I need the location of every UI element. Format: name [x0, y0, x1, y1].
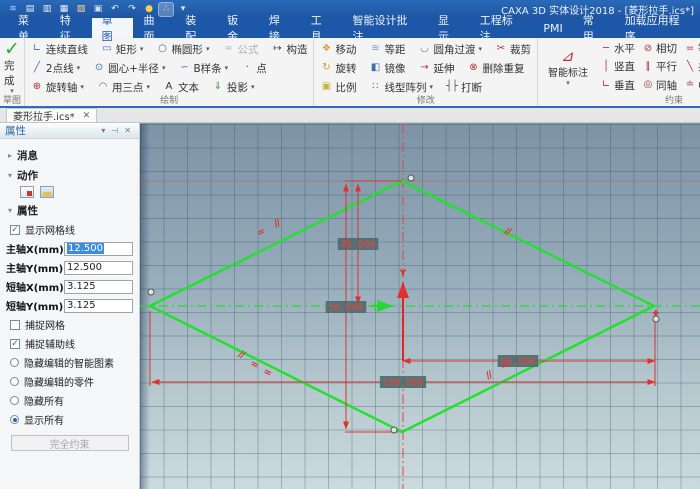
section-properties[interactable]: ▾属性 — [8, 203, 133, 218]
move-button[interactable]: ❖移动 — [318, 41, 358, 58]
chevron-down-icon: ▾ — [146, 83, 150, 91]
ribbon-row: ❖移动≋等距◡圆角过渡▾✂裁剪 — [318, 40, 533, 58]
group-label-constraint: 约束 — [538, 93, 700, 106]
section-properties-label: 属性 — [17, 203, 38, 218]
perpendicular-constraint-label: 垂直 — [614, 78, 635, 93]
two-point-line-icon: ╱ — [31, 63, 43, 73]
parallel-constraint-mark: // — [484, 369, 495, 382]
radio-icon[interactable] — [10, 415, 19, 424]
two-point-line-button[interactable]: ╱2点线▾ — [29, 60, 82, 77]
menu-tab-装配[interactable]: 装配 — [175, 18, 217, 38]
menu-tab-工程标注[interactable]: 工程标注 — [470, 18, 534, 38]
radio-icon[interactable] — [10, 377, 19, 386]
properties-panel: 属性 ▾ ⊤ ✕ ▸消息▾动作▾属性✓显示网格线主轴X(mm)12.500主轴Y… — [0, 123, 140, 489]
triangle-down-icon: ▾ — [8, 206, 12, 215]
ribbon-row: ╱2点线▾⊙圆心+半径▾∽B样条▾·点 — [29, 59, 310, 77]
menu-tab-钣金[interactable]: 钣金 — [217, 18, 259, 38]
field-input-3[interactable]: 3.125 — [64, 299, 133, 313]
projection-icon: ⇓ — [212, 82, 224, 92]
delete-duplicate-icon: ⊗ — [467, 63, 479, 73]
field-value: 12.500 — [67, 262, 102, 273]
extend-label: 延伸 — [433, 61, 454, 76]
chevron-down-icon: ▾ — [206, 45, 210, 53]
equal-length-constraint-icon: = — [684, 44, 696, 54]
radio-label: 显示所有 — [24, 412, 64, 427]
construction-icon: ↦ — [271, 44, 283, 54]
equal-constraint-mark: = — [248, 358, 260, 371]
fillet-icon: ◡ — [418, 44, 430, 54]
construction-label: 构造 — [286, 42, 307, 57]
delete-duplicate-label: 删除重复 — [482, 61, 524, 76]
finish-button[interactable]: ✓ 完成 ▾ — [4, 40, 20, 94]
vertex-marker[interactable] — [653, 316, 659, 322]
circle-center-radius-label: 圆心+半径 — [108, 61, 159, 76]
vertex-marker[interactable] — [408, 175, 414, 181]
show-gridlines-checkbox[interactable]: ✓显示网格线 — [10, 222, 133, 237]
horizontal-constraint-button[interactable]: ─水平 — [598, 40, 638, 57]
close-icon[interactable]: ✕ — [83, 111, 91, 121]
y-axis-label: Y — [399, 269, 407, 279]
rotation-axis-icon: ⊕ — [31, 82, 43, 92]
properties-panel-title: 属性 — [5, 123, 98, 138]
concentric-constraint-label: 同轴 — [656, 78, 677, 93]
circle-center-radius-button[interactable]: ⊙圆心+半径▾ — [91, 60, 167, 77]
formula-button: ≈公式 — [220, 41, 260, 58]
chevron-down-icon: ▾ — [566, 80, 570, 86]
horizontal-constraint-icon: ─ — [600, 44, 612, 54]
menu-tab-显示[interactable]: 显示 — [428, 18, 470, 38]
field-input-0[interactable]: 12.500 — [64, 242, 133, 256]
rectangle-icon: ▭ — [101, 44, 113, 54]
fillet-button[interactable]: ◡圆角过渡▾ — [416, 41, 484, 58]
ribbon-row: ↻旋转◧镜像→延伸⊗删除重复 — [318, 59, 533, 77]
vertical-constraint-icon: │ — [600, 62, 612, 72]
ribbon-group-modify: ❖移动≋等距◡圆角过渡▾✂裁剪↻旋转◧镜像→延伸⊗删除重复▣比例∷线型阵列▾┤├… — [314, 38, 538, 106]
menu-tab-曲面[interactable]: 曲面 — [133, 18, 175, 38]
tangent-constraint-icon: ⊘ — [642, 44, 654, 54]
chevron-down-icon: ▾ — [162, 64, 166, 72]
equal-length-constraint-button[interactable]: =等长 — [682, 40, 700, 57]
equal-constraint-mark: = — [255, 226, 267, 239]
equal-constraint-mark: = — [261, 366, 273, 379]
check-icon: ✓ — [4, 40, 20, 58]
field-value: 3.125 — [67, 281, 96, 292]
ribbon: ✓ 完成 ▾ 草图 ∟连续直线▭矩形▾○椭圆形▾≈公式↦构造╱2点线▾⊙圆心+半… — [0, 38, 700, 108]
document-tab-label: 菱形拉手.ics* — [13, 108, 75, 123]
parallel-constraint-button[interactable]: ∥平行 — [640, 58, 680, 75]
vertex-marker[interactable] — [148, 289, 154, 295]
pin-icon[interactable]: ⊤ — [110, 124, 119, 137]
checkbox-icon[interactable]: ✓ — [10, 339, 20, 349]
radio-icon[interactable] — [10, 396, 19, 405]
point-icon: · — [241, 63, 253, 73]
b-spline-icon: ∽ — [178, 63, 190, 73]
checkbox-icon[interactable]: ✓ — [10, 225, 20, 235]
delete-duplicate-button[interactable]: ⊗删除重复 — [465, 60, 526, 77]
section-messages-label: 消息 — [17, 148, 38, 163]
tangent-constraint-label: 相切 — [656, 41, 677, 56]
perpendicular-constraint-icon: ∟ — [600, 80, 612, 90]
snap-checkbox-1[interactable]: ✓捕捉辅助线 — [10, 336, 133, 351]
field-value: 12.500 — [67, 243, 104, 254]
concentric-constraint-button[interactable]: ◎同轴 — [640, 77, 680, 94]
chevron-down-icon: ▾ — [77, 64, 81, 72]
rectangle-button[interactable]: ▭矩形▾ — [99, 41, 146, 58]
continuous-line-icon: ∟ — [31, 44, 43, 54]
pattern-icon: ∷ — [369, 82, 381, 92]
menu-tab-PMI[interactable]: PMI — [533, 18, 572, 38]
radio-label: 隐藏编辑的智能图素 — [24, 355, 114, 370]
offset-label: 等距 — [384, 42, 405, 57]
chevron-down-icon: ▾ — [429, 83, 433, 91]
menu-tab-加载应用程序[interactable]: 加载应用程序 — [615, 18, 700, 38]
vertical-constraint-label: 竖直 — [614, 59, 635, 74]
field-row: 主轴X(mm)12.500 — [6, 241, 133, 256]
two-point-line-label: 2点线 — [46, 61, 74, 76]
point-button[interactable]: ·点 — [239, 60, 269, 77]
chevron-down-icon[interactable]: ▾ — [98, 126, 108, 135]
redo-icon[interactable]: ↷ — [125, 3, 139, 16]
checkbox-icon[interactable] — [10, 320, 20, 330]
section-messages[interactable]: ▸消息 — [8, 148, 133, 163]
b-spline-label: B样条 — [193, 61, 221, 76]
midpoint-constraint-icon: ≐ — [684, 80, 696, 90]
group-label-sketch: 草图 — [0, 93, 24, 106]
sketch-canvas[interactable]: Y25.00050.00050.000100.000//=////===// — [140, 123, 700, 489]
chevron-down-icon: ▾ — [80, 83, 84, 91]
menu-tab-智能设计批注[interactable]: 智能设计批注 — [343, 18, 428, 38]
formula-icon: ≈ — [222, 44, 234, 54]
field-row: 短轴Y(mm)3.125 — [6, 298, 133, 313]
field-value: 3.125 — [67, 300, 96, 311]
document-tab[interactable]: 菱形拉手.ics* ✕ — [6, 108, 97, 122]
trim-label: 裁剪 — [510, 42, 531, 57]
radio-icon[interactable] — [10, 358, 19, 367]
group-label-modify: 修改 — [314, 93, 537, 106]
menu-tab-焊接[interactable]: 焊接 — [259, 18, 301, 38]
snap-checkbox-0[interactable]: 捕捉网格 — [10, 317, 133, 332]
fully-constrain-button[interactable]: 完全约束 — [11, 435, 129, 451]
menu-tab-工具[interactable]: 工具 — [301, 18, 343, 38]
three-point-arc-icon: ◠ — [97, 82, 109, 92]
ribbon-row: ∟连续直线▭矩形▾○椭圆形▾≈公式↦构造 — [29, 40, 310, 58]
menu-tab-常用[interactable]: 常用 — [573, 18, 615, 38]
collinear-constraint-button[interactable]: ╲共线 — [682, 58, 700, 75]
menu-bar: 菜单特征草图曲面装配钣金焊接工具智能设计批注显示工程标注PMI常用加载应用程序 — [0, 18, 700, 38]
continuous-line-label: 连续直线 — [46, 42, 88, 57]
mirror-button[interactable]: ◧镜像 — [367, 60, 407, 77]
full-height-dim-value[interactable]: 50.000 — [329, 303, 364, 314]
text-icon: A — [163, 82, 175, 92]
chevron-down-icon: ▾ — [478, 45, 482, 53]
parallel-constraint-mark: // — [272, 217, 283, 230]
radio-label: 隐藏所有 — [24, 393, 64, 408]
caxa-window: ≋▤▥▦▧▣↶↷●∴▾ CAXA 3D 实体设计2018 - [菱形拉手.ics… — [0, 0, 700, 489]
offset-button[interactable]: ≋等距 — [367, 41, 407, 58]
field-input-1[interactable]: 12.500 — [64, 261, 133, 275]
vertical-constraint-button[interactable]: │竖直 — [598, 58, 638, 75]
extend-icon: → — [418, 63, 430, 73]
snap-checkbox-1-label: 捕捉辅助线 — [25, 336, 75, 351]
field-row: 短轴X(mm)3.125 — [6, 279, 133, 294]
ribbon-group-draw: ∟连续直线▭矩形▾○椭圆形▾≈公式↦构造╱2点线▾⊙圆心+半径▾∽B样条▾·点⊕… — [25, 38, 315, 106]
sketch-drawing: Y25.00050.00050.000100.000//=////===// — [140, 124, 700, 489]
ellipse-button[interactable]: ○椭圆形▾ — [154, 41, 211, 58]
horizontal-constraint-label: 水平 — [614, 41, 635, 56]
field-label: 主轴X(mm) — [6, 241, 64, 256]
document-tab-bar: 菱形拉手.ics* ✕ — [0, 108, 700, 123]
parallel-constraint-label: 平行 — [656, 59, 677, 74]
ribbon-group-constraint: ⊿ 智能标注 ▾ ─水平⊘相切=等长∠重合▷穿透│竖直∥平行╲共线◫镜像✎编辑尺… — [538, 38, 700, 106]
edit-action-icon[interactable] — [20, 186, 34, 198]
chevron-down-icon: ▾ — [225, 64, 229, 72]
radio-label: 隐藏编辑的零件 — [24, 374, 94, 389]
ribbon-row: ∟垂直◎同轴≐中点⊥固定◈水平▾ — [598, 77, 700, 94]
circle-center-radius-icon: ⊙ — [93, 63, 105, 73]
rotate-icon: ↻ — [320, 63, 332, 73]
tangent-constraint-button[interactable]: ⊘相切 — [640, 40, 680, 57]
formula-label: 公式 — [237, 42, 258, 57]
field-label: 短轴X(mm) — [6, 279, 64, 294]
visibility-radio-3[interactable]: 显示所有 — [10, 412, 133, 427]
section-actions-label: 动作 — [17, 168, 38, 183]
visibility-radio-0[interactable]: 隐藏编辑的智能图素 — [10, 355, 133, 370]
triangle-right-icon: ▸ — [8, 151, 12, 160]
trim-icon: ✂ — [495, 44, 507, 54]
menu-tab-草图[interactable]: 草图 — [92, 18, 134, 38]
menu-tab-特征[interactable]: 特征 — [50, 18, 92, 38]
ribbon-group-sketch: ✓ 完成 ▾ 草图 — [0, 38, 25, 106]
midpoint-constraint-button[interactable]: ≐中点 — [682, 77, 700, 94]
perpendicular-constraint-button[interactable]: ∟垂直 — [598, 77, 638, 94]
chevron-down-icon: ▾ — [251, 83, 255, 91]
offset-icon: ≋ — [369, 44, 381, 54]
visibility-radio-2[interactable]: 隐藏所有 — [10, 393, 133, 408]
continuous-line-button[interactable]: ∟连续直线 — [29, 41, 90, 58]
field-label: 主轴Y(mm) — [6, 260, 64, 275]
properties-panel-header: 属性 ▾ ⊤ ✕ — [0, 123, 139, 139]
fillet-label: 圆角过渡 — [433, 42, 475, 57]
ribbon-row: │竖直∥平行╲共线◫镜像✎编辑尺寸 — [598, 58, 700, 75]
concentric-constraint-icon: ◎ — [642, 80, 654, 90]
b-spline-button[interactable]: ∽B样条▾ — [176, 60, 230, 77]
open-file-icon[interactable]: ▥ — [40, 3, 54, 16]
snap-checkbox-0-label: 捕捉网格 — [25, 317, 65, 332]
field-input-2[interactable]: 3.125 — [64, 280, 133, 294]
close-icon[interactable]: ✕ — [121, 126, 134, 135]
extend-button[interactable]: →延伸 — [416, 60, 456, 77]
smart-dimension-button[interactable]: ⊿ 智能标注 ▾ — [542, 40, 594, 94]
move-label: 移动 — [335, 42, 356, 57]
move-icon: ❖ — [320, 44, 332, 54]
mirror-label: 镜像 — [384, 61, 405, 76]
visibility-radio-1[interactable]: 隐藏编辑的零件 — [10, 374, 133, 389]
ellipse-icon: ○ — [156, 44, 168, 54]
group-label-draw: 绘制 — [25, 93, 314, 106]
mirror-icon: ◧ — [369, 63, 381, 73]
field-row: 主轴Y(mm)12.500 — [6, 260, 133, 275]
chevron-down-icon: ▾ — [140, 45, 144, 53]
rectangle-label: 矩形 — [116, 42, 137, 57]
parallel-constraint-icon: ∥ — [642, 62, 654, 72]
full-width-dim-value[interactable]: 100.000 — [383, 378, 423, 389]
ribbon-row: ─水平⊘相切=等长∠重合▷穿透 — [598, 40, 700, 57]
show-gridlines-checkbox-label: 显示网格线 — [25, 222, 75, 237]
point-label: 点 — [256, 61, 267, 76]
scale-icon: ▣ — [320, 82, 332, 92]
break-icon: ┤├ — [446, 82, 458, 92]
rotate-button[interactable]: ↻旋转 — [318, 60, 358, 77]
menu-tab-菜单[interactable]: 菜单 — [8, 18, 50, 38]
vertex-marker[interactable] — [391, 427, 397, 433]
trim-button[interactable]: ✂裁剪 — [493, 41, 533, 58]
action-icons — [20, 186, 133, 198]
field-label: 短轴Y(mm) — [6, 298, 64, 313]
triangle-down-icon: ▾ — [8, 171, 12, 180]
ellipse-label: 椭圆形 — [171, 42, 203, 57]
rotate-label: 旋转 — [335, 61, 356, 76]
smart-dimension-icon: ⊿ — [560, 49, 576, 63]
collinear-constraint-icon: ╲ — [684, 62, 696, 72]
construction-button[interactable]: ↦构造 — [269, 41, 309, 58]
section-actions[interactable]: ▾动作 — [8, 168, 133, 183]
finish-label: 完成 — [4, 58, 20, 88]
save-action-icon[interactable] — [40, 186, 54, 198]
